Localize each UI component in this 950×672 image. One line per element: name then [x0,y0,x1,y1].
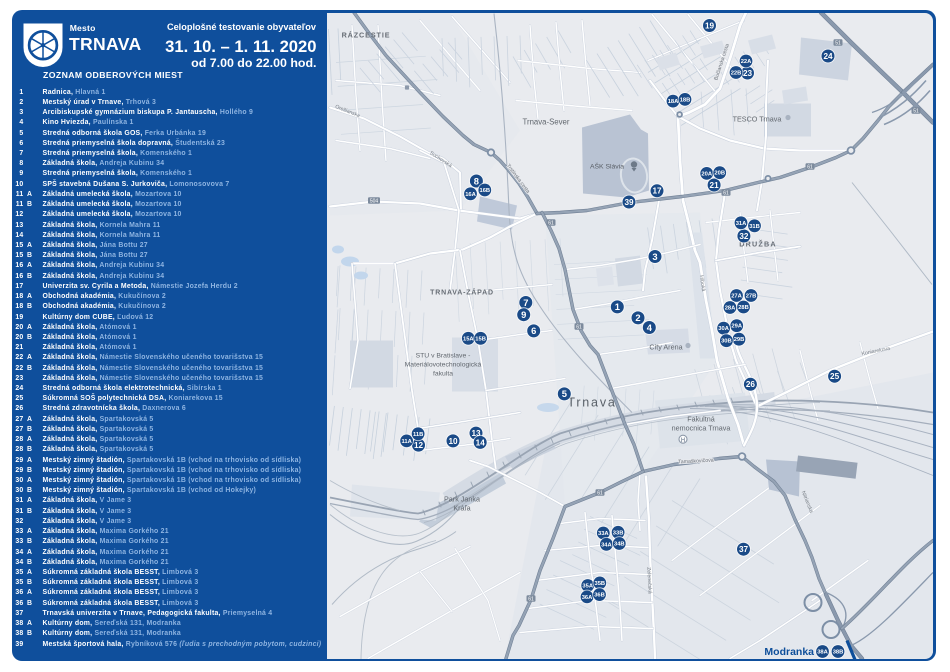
svg-text:18B: 18B [680,97,691,103]
svg-text:10: 10 [448,436,458,445]
svg-text:22A: 22A [741,59,752,65]
svg-text:18A: 18A [668,99,679,105]
svg-text:35B: 35B [594,580,605,586]
svg-text:14: 14 [476,438,486,447]
svg-text:15B: 15B [475,336,486,342]
svg-text:12: 12 [414,441,424,450]
svg-text:25: 25 [830,372,840,381]
svg-text:30A: 30A [718,326,729,332]
svg-text:TESCO Trnava: TESCO Trnava [733,114,782,123]
svg-text:6: 6 [531,325,536,336]
svg-text:36B: 36B [594,592,605,598]
svg-text:39: 39 [624,197,634,206]
svg-text:31A: 31A [736,220,747,226]
svg-text:16B: 16B [479,188,490,194]
svg-text:9: 9 [521,309,526,320]
svg-text:28B: 28B [738,305,749,311]
svg-text:nemocnica Trnava: nemocnica Trnava [672,423,731,432]
svg-text:29B: 29B [734,337,745,343]
svg-text:TRNAVA-ZÁPAD: TRNAVA-ZÁPAD [430,287,494,296]
svg-text:16A: 16A [465,191,476,197]
svg-text:51: 51 [913,108,919,114]
svg-text:Trnava-Sever: Trnava-Sever [523,117,570,126]
svg-text:33B: 33B [613,530,624,536]
svg-text:26: 26 [746,380,756,389]
svg-text:11A: 11A [401,438,412,444]
svg-text:37: 37 [739,545,749,554]
svg-text:City Arena: City Arena [649,342,682,351]
svg-text:36A: 36A [582,594,593,600]
svg-text:34B: 34B [614,541,625,547]
svg-text:Materiálovotechnologická: Materiálovotechnologická [405,361,482,368]
svg-text:20A: 20A [701,171,712,177]
svg-text:24: 24 [823,51,833,60]
svg-text:19: 19 [705,21,715,30]
svg-text:Fakultná: Fakultná [687,414,715,423]
svg-text:61: 61 [807,164,813,170]
svg-text:20B: 20B [714,170,725,176]
svg-text:34A: 34A [601,542,612,548]
svg-text:61: 61 [548,220,554,226]
svg-text:61: 61 [528,596,534,602]
svg-text:61: 61 [576,324,582,330]
svg-text:61: 61 [723,190,729,196]
svg-text:32: 32 [739,231,749,240]
svg-text:51: 51 [835,40,841,46]
svg-text:STU v Bratislave -: STU v Bratislave - [416,352,471,359]
svg-text:35A: 35A [582,583,593,589]
svg-text:27A: 27A [731,293,742,299]
svg-text:33A: 33A [598,531,609,537]
svg-text:30B: 30B [721,338,732,344]
svg-text:21: 21 [710,180,720,189]
svg-text:3: 3 [652,250,657,261]
svg-text:27B: 27B [746,293,757,299]
svg-text:504: 504 [370,198,379,204]
svg-text:28A: 28A [725,305,736,311]
svg-text:11B: 11B [413,431,423,437]
svg-text:38B: 38B [833,649,844,655]
svg-text:38A: 38A [817,649,828,655]
svg-text:RÁZCESTIE: RÁZCESTIE [342,30,391,39]
svg-text:Kráľa: Kráľa [453,503,470,512]
svg-text:23: 23 [743,68,753,77]
svg-text:4: 4 [647,321,653,332]
svg-text:5: 5 [562,388,567,399]
svg-text:2: 2 [635,312,640,323]
svg-text:31B: 31B [749,223,760,229]
svg-text:1: 1 [615,301,620,312]
svg-text:17: 17 [652,186,662,195]
svg-text:8: 8 [474,175,479,186]
svg-text:15A: 15A [463,336,474,342]
svg-text:61: 61 [597,490,603,496]
svg-text:29A: 29A [731,323,742,329]
svg-text:Trnava: Trnava [567,395,616,409]
svg-text:Modranka: Modranka [764,646,814,658]
svg-text:7: 7 [523,296,528,307]
svg-text:AŠK Slávia: AŠK Slávia [590,161,624,170]
svg-text:22B: 22B [731,70,742,76]
svg-text:fakulta: fakulta [433,370,453,377]
svg-text:H: H [681,437,686,444]
svg-text:Park Janka: Park Janka [444,494,480,503]
